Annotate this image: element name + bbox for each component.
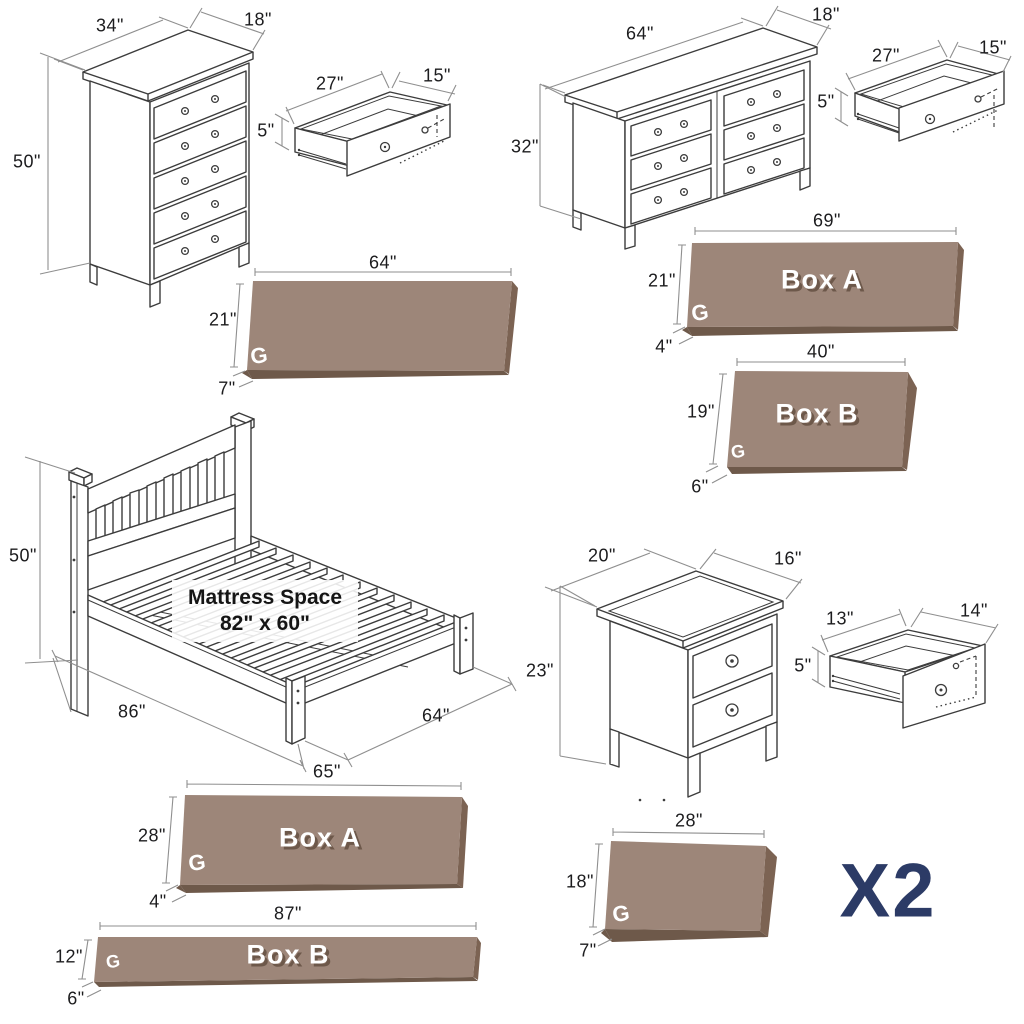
box-a1-length-label: 69"	[813, 211, 841, 232]
chest-drawer-drawing	[275, 71, 456, 176]
box-a1-height-label: 4"	[655, 337, 672, 358]
bed-width-label: 64"	[422, 706, 450, 727]
brand-g-logo: G	[105, 951, 122, 974]
box-a1-width-label: 21"	[648, 271, 676, 292]
dresser-height-label: 32"	[511, 137, 539, 158]
brand-g-logo: G	[611, 900, 632, 928]
dresser-width-label: 64"	[626, 24, 654, 45]
mattress-space-title: Mattress Space	[188, 585, 342, 611]
bed-length-label: 86"	[118, 702, 146, 723]
chest-drawer-height-label: 5"	[257, 121, 274, 142]
mattress-space-size: 82" x 60"	[220, 611, 310, 637]
dresser-shipping-box	[230, 268, 518, 387]
nightstand-shipping-box	[589, 828, 777, 946]
box-b1-length-label: 40"	[807, 342, 835, 363]
box-b2-length-label: 87"	[274, 904, 302, 925]
nightstand-box-width-label: 18"	[566, 872, 594, 893]
nightstand-depth-label: 16"	[774, 549, 802, 570]
dresser-depth-label: 18"	[812, 5, 840, 26]
furniture-dimensions-diagram: 34" 18" 50" 27" 15" 5" 64" 18" 32" 27" 1…	[0, 0, 1024, 1024]
nightstand-box-length-label: 28"	[675, 811, 703, 832]
brand-g-logo: G	[249, 342, 270, 370]
box-b2-width-label: 12"	[55, 947, 83, 968]
box-a1-label: Box A	[781, 265, 863, 296]
nightstand-width-label: 20"	[588, 546, 616, 567]
chest-drawer-width-label: 27"	[316, 74, 344, 95]
chest-drawing	[40, 8, 265, 307]
box-a2-height-label: 4"	[149, 892, 166, 913]
nightstand-drawer-depth-label: 14"	[960, 601, 988, 622]
dresser-box-length-label: 64"	[369, 253, 397, 274]
chest-depth-label: 18"	[244, 10, 272, 31]
brand-g-logo: G	[730, 441, 747, 464]
chest-width-label: 34"	[96, 16, 124, 37]
box-b2-label: Box B	[246, 940, 329, 971]
nightstand-drawer-width-label: 13"	[826, 609, 854, 630]
dresser-box-height-label: 7"	[218, 379, 235, 400]
quantity-multiplier: X2	[840, 848, 937, 935]
box-b1-height-label: 6"	[691, 477, 708, 498]
dresser-drawing	[540, 6, 831, 249]
nightstand-box-height-label: 7"	[579, 941, 596, 962]
chest-drawer-depth-label: 15"	[423, 66, 451, 87]
dresser-drawer-height-label: 5"	[817, 92, 834, 113]
brand-g-logo: G	[187, 849, 208, 877]
brand-g-logo: G	[690, 299, 711, 327]
box-b1-width-label: 19"	[687, 402, 715, 423]
nightstand-drawer-height-label: 5"	[794, 656, 811, 677]
dresser-drawer-width-label: 27"	[872, 46, 900, 67]
box-b1-label: Box B	[775, 399, 858, 430]
dresser-box-width-label: 21"	[209, 310, 237, 331]
nightstand-height-label: 23"	[526, 661, 554, 682]
chest-height-label: 50"	[13, 152, 41, 173]
nightstand-drawing	[545, 549, 802, 801]
box-a2-label: Box A	[279, 823, 361, 854]
dresser-drawer-depth-label: 15"	[979, 38, 1007, 59]
box-a2-width-label: 28"	[138, 826, 166, 847]
bed-height-label: 50"	[9, 546, 37, 567]
box-b2-height-label: 6"	[67, 989, 84, 1010]
mattress-space-callout: Mattress Space 82" x 60"	[172, 580, 358, 642]
box-a2-length-label: 65"	[313, 762, 341, 783]
